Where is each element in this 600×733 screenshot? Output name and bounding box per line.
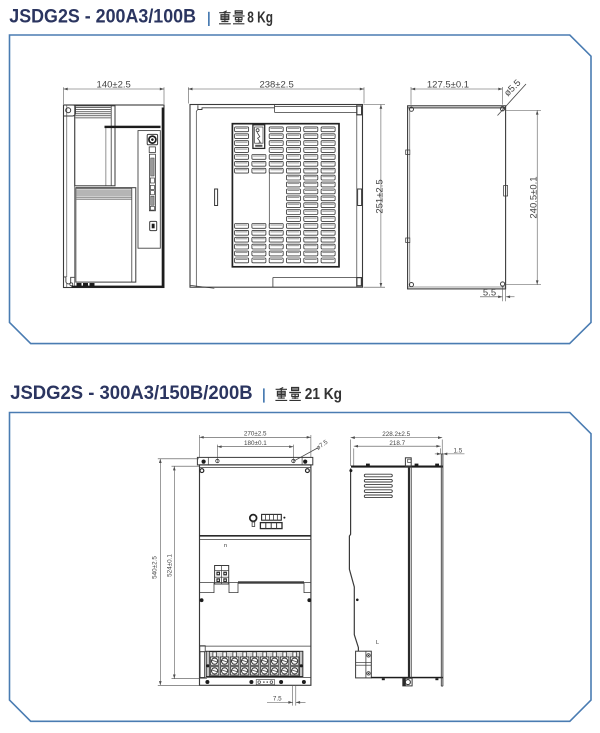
svg-text:ø7.5: ø7.5: [315, 439, 330, 452]
svg-text:270±2.5: 270±2.5: [244, 431, 267, 438]
svg-text:8 Kg: 8 Kg: [247, 10, 273, 27]
svg-text:228.2±2.5: 228.2±2.5: [382, 431, 410, 438]
svg-text:127.5±0.1: 127.5±0.1: [427, 79, 469, 90]
svg-text:L: L: [376, 640, 379, 646]
svg-text:JSDG2S - 200A3/100B: JSDG2S - 200A3/100B: [9, 6, 196, 28]
svg-text:21 Kg: 21 Kg: [305, 386, 342, 403]
svg-text:ø5.5: ø5.5: [502, 78, 523, 99]
svg-text:n: n: [224, 543, 227, 549]
svg-text:540±2.5: 540±2.5: [151, 556, 158, 579]
svg-text:1.5: 1.5: [454, 447, 463, 454]
svg-text:7.5: 7.5: [273, 696, 282, 703]
svg-text:140±2.5: 140±2.5: [97, 79, 131, 90]
svg-text:524±0.1: 524±0.1: [166, 554, 173, 577]
svg-text:218.7: 218.7: [389, 440, 405, 447]
svg-text:5.5: 5.5: [483, 287, 496, 298]
svg-text:238±2.5: 238±2.5: [259, 79, 293, 90]
svg-text:JSDG2S - 300A3/150B/200B: JSDG2S - 300A3/150B/200B: [10, 382, 252, 404]
svg-text:240.5±0.1: 240.5±0.1: [529, 176, 540, 218]
svg-text:251±2.5: 251±2.5: [374, 179, 385, 213]
svg-text:180±0.1: 180±0.1: [244, 440, 267, 447]
